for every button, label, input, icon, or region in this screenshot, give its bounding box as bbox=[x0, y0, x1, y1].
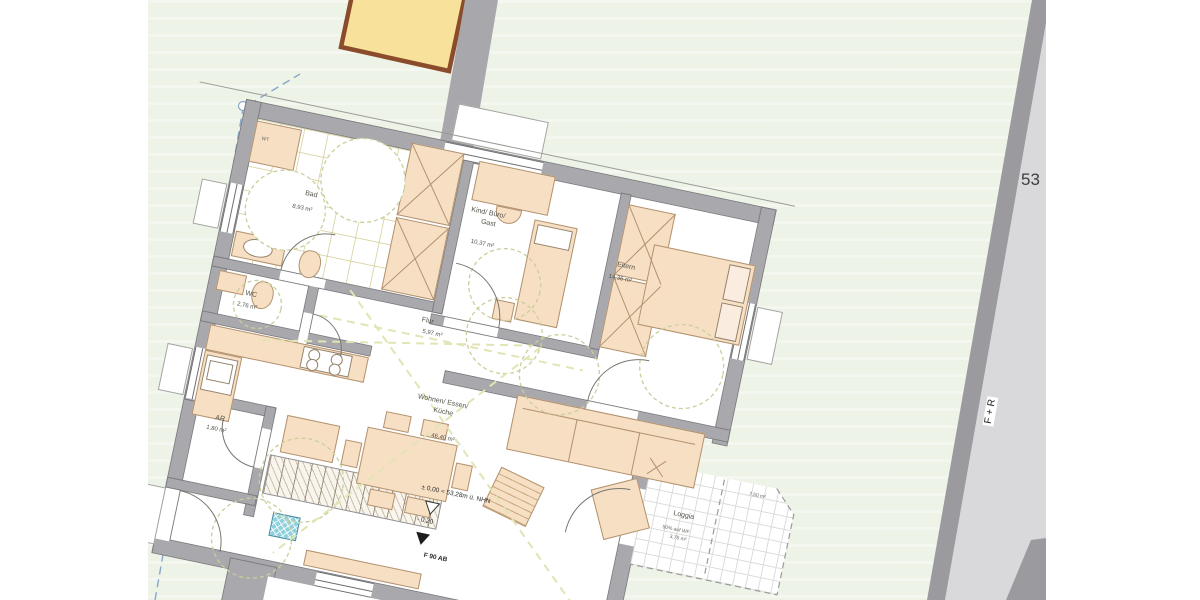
drawing-area: 53 F + R 90 50 bbox=[148, 0, 1046, 600]
floor-plan: WT Bad 8,93 m² WC 2,76 m² Kind/ Büro/ Ga… bbox=[153, 100, 776, 600]
stove-burners bbox=[306, 349, 344, 377]
door-arcs bbox=[169, 214, 669, 600]
closet-x-braces bbox=[355, 143, 719, 477]
washtable-label: WT bbox=[261, 136, 270, 143]
loggia-outline bbox=[630, 462, 798, 594]
house-number: 53 bbox=[1021, 170, 1040, 190]
level-open-triangle-icon bbox=[423, 501, 439, 516]
level-filled-triangle-icon bbox=[414, 532, 430, 547]
site-plan-sheet: 53 F + R 90 50 bbox=[0, 0, 1200, 600]
room-label-ar: AR bbox=[214, 414, 225, 424]
